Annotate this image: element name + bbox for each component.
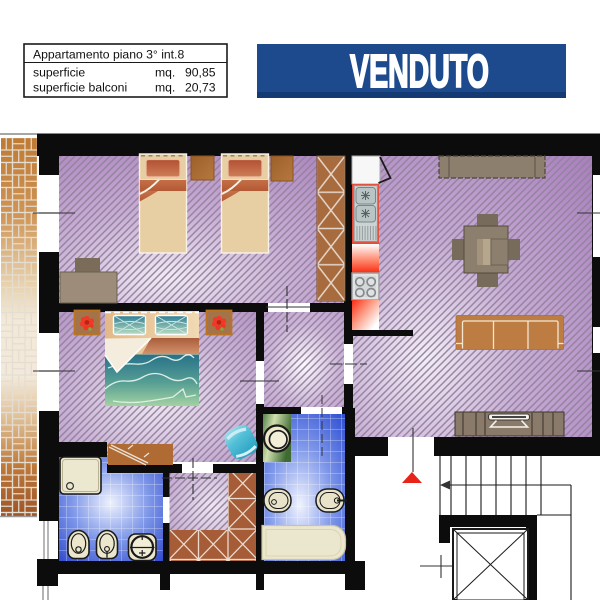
- svg-text:VENDUTO: VENDUTO: [350, 46, 489, 98]
- svg-text:superficie: superficie: [33, 66, 85, 80]
- svg-text:90,85: 90,85: [185, 66, 216, 80]
- svg-text:20,73: 20,73: [185, 81, 216, 95]
- svg-text:mq.: mq.: [155, 81, 175, 95]
- svg-text:mq.: mq.: [155, 66, 175, 80]
- svg-text:superficie balconi: superficie balconi: [33, 81, 127, 95]
- svg-text:Appartamento piano 3° int.8: Appartamento piano 3° int.8: [33, 48, 184, 62]
